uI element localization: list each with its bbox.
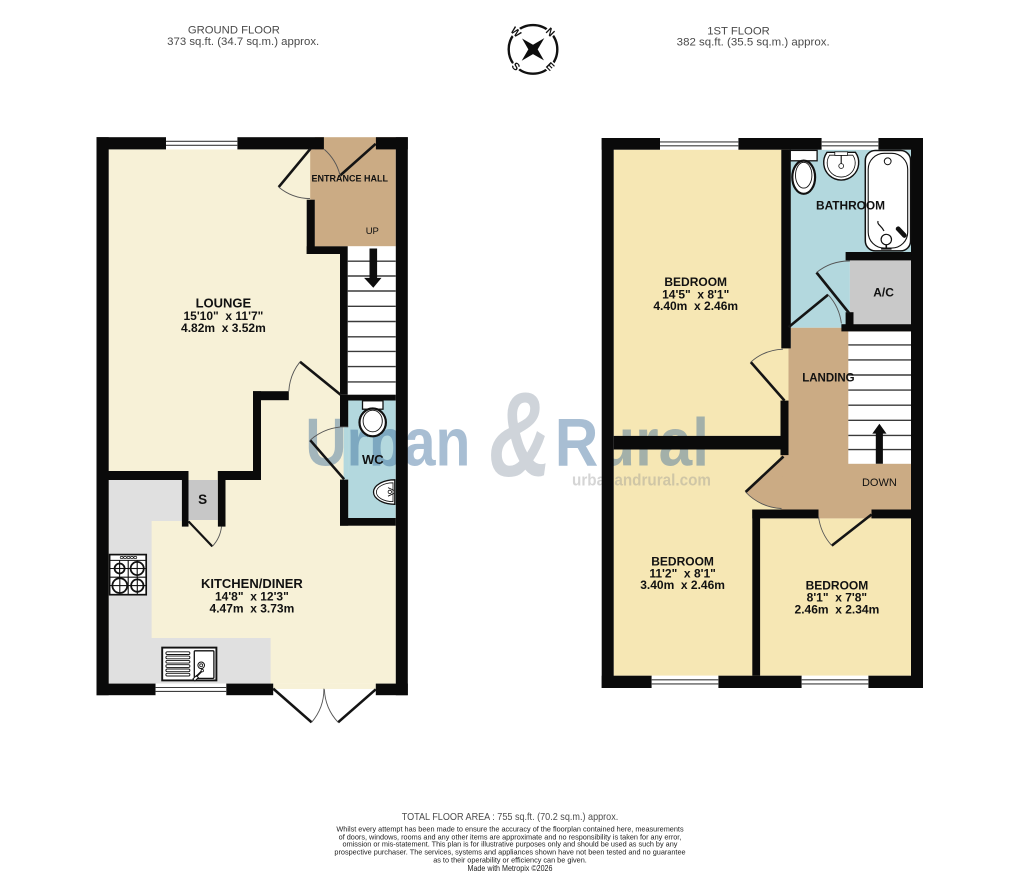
svg-text:UP: UP	[366, 226, 379, 237]
svg-text:DOWN: DOWN	[862, 477, 897, 489]
svg-text:LANDING: LANDING	[802, 373, 854, 385]
svg-text:TOTAL FLOOR AREA : 755 sq.ft.: TOTAL FLOOR AREA : 755 sq.ft. (70.2 sq.m…	[402, 811, 619, 823]
svg-text:4.40m x 2.46m: 4.40m x 2.46m	[653, 299, 738, 313]
svg-text:Made with Metropix ©2026: Made with Metropix ©2026	[468, 864, 553, 873]
svg-text:4.82m x 3.52m: 4.82m x 3.52m	[181, 321, 266, 335]
svg-text:2.46m x 2.34m: 2.46m x 2.34m	[795, 602, 880, 616]
svg-text:urbanandrural.com: urbanandrural.com	[572, 470, 711, 489]
svg-text:BATHROOM: BATHROOM	[816, 198, 885, 212]
svg-text:S: S	[198, 492, 207, 507]
svg-text:A/C: A/C	[873, 286, 894, 300]
svg-text:4.47m x 3.73m: 4.47m x 3.73m	[210, 601, 295, 615]
svg-text:ENTRANCE HALL: ENTRANCE HALL	[312, 174, 389, 184]
svg-text:1ST FLOOR: 1ST FLOOR	[707, 25, 770, 37]
svg-text:373 sq.ft. (34.7 sq.m.) approx: 373 sq.ft. (34.7 sq.m.) approx.	[167, 36, 319, 48]
svg-text:WC: WC	[362, 452, 384, 467]
svg-text:GROUND FLOOR: GROUND FLOOR	[188, 25, 280, 37]
svg-text:382 sq.ft. (35.5 sq.m.) approx: 382 sq.ft. (35.5 sq.m.) approx.	[677, 37, 830, 49]
svg-text:Urban: Urban	[305, 405, 470, 481]
svg-text:&: &	[489, 368, 551, 503]
svg-text:3.40m x 2.46m: 3.40m x 2.46m	[640, 578, 725, 592]
